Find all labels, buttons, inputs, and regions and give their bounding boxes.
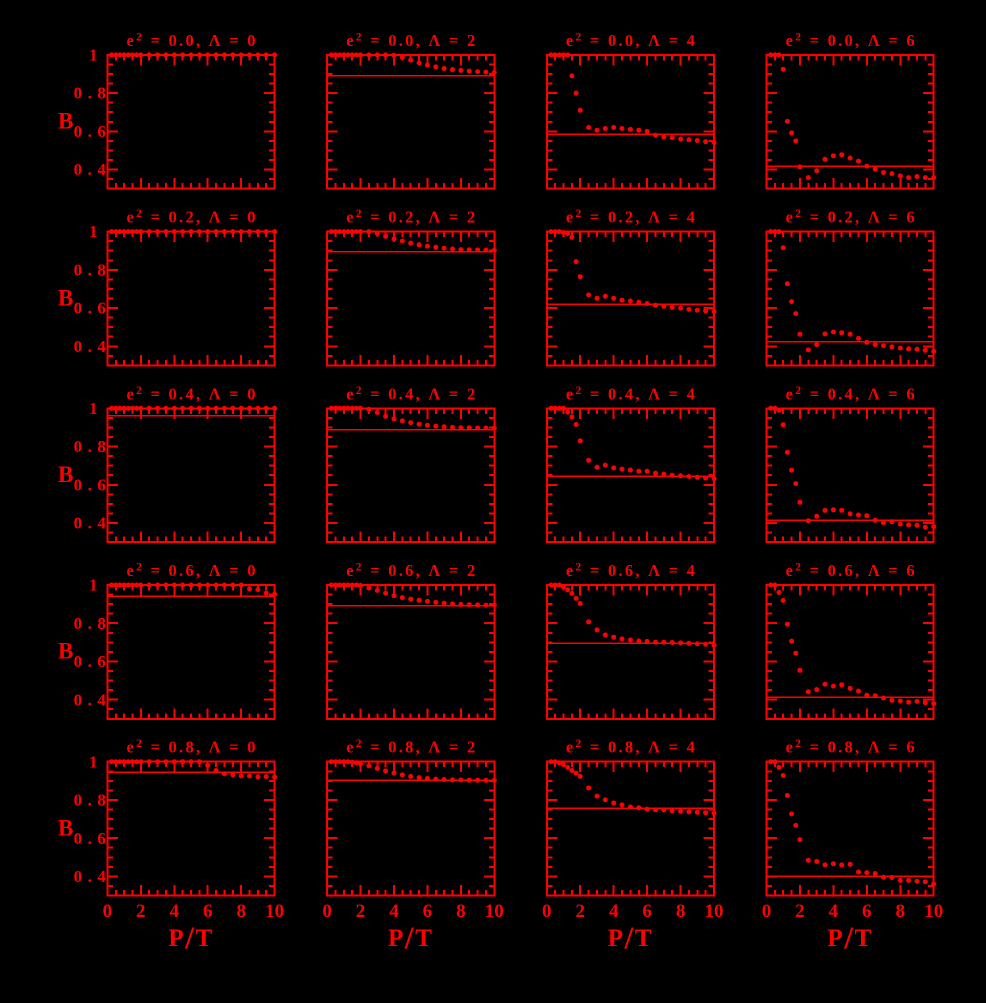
svg-text:e2 = 0.8, Λ = 6: e2 = 0.8, Λ = 6	[786, 738, 915, 757]
svg-text:e2 = 0.2, Λ = 6: e2 = 0.2, Λ = 6	[786, 208, 915, 227]
svg-text:1: 1	[89, 399, 98, 418]
svg-text:4: 4	[829, 901, 839, 922]
svg-text:e2 = 0.0, Λ = 4: e2 = 0.0, Λ = 4	[566, 31, 695, 50]
svg-text:0: 0	[542, 901, 552, 922]
svg-text:1: 1	[89, 576, 98, 595]
svg-text:e2 = 0.4, Λ = 0: e2 = 0.4, Λ = 0	[127, 384, 256, 403]
svg-text:e2 = 0.6, Λ = 6: e2 = 0.6, Λ = 6	[786, 561, 915, 580]
svg-text:B: B	[58, 639, 73, 664]
svg-text:4: 4	[389, 901, 399, 922]
svg-text:e2 = 0.4, Λ = 4: e2 = 0.4, Λ = 4	[566, 384, 695, 403]
svg-text:0.8: 0.8	[74, 614, 112, 633]
svg-text:e2 = 0.6, Λ = 2: e2 = 0.6, Λ = 2	[346, 561, 475, 580]
svg-text:1: 1	[89, 752, 98, 771]
svg-text:6: 6	[642, 901, 652, 922]
svg-text:e2 = 0.2, Λ = 0: e2 = 0.2, Λ = 0	[127, 208, 256, 227]
svg-text:10: 10	[485, 901, 504, 922]
svg-text:e2 = 0.0, Λ = 0: e2 = 0.0, Λ = 0	[127, 31, 256, 50]
svg-text:e2 = 0.0, Λ = 6: e2 = 0.0, Λ = 6	[786, 31, 915, 50]
svg-text:e2 = 0.8, Λ = 4: e2 = 0.8, Λ = 4	[566, 738, 695, 757]
svg-text:6: 6	[423, 901, 433, 922]
svg-text:8: 8	[676, 901, 686, 922]
svg-text:e2 = 0.8, Λ = 0: e2 = 0.8, Λ = 0	[127, 738, 256, 757]
svg-text:0.6: 0.6	[74, 829, 112, 848]
svg-text:0: 0	[762, 901, 772, 922]
svg-text:10: 10	[705, 901, 724, 922]
svg-text:P/T: P/T	[827, 920, 872, 956]
svg-text:e2 = 0.6, Λ = 0: e2 = 0.6, Λ = 0	[127, 561, 256, 580]
svg-text:0.6: 0.6	[74, 299, 112, 318]
svg-text:0.8: 0.8	[74, 791, 112, 810]
svg-text:2: 2	[575, 901, 585, 922]
svg-text:2: 2	[356, 901, 366, 922]
svg-text:0.8: 0.8	[74, 437, 112, 456]
svg-text:8: 8	[236, 901, 246, 922]
svg-text:0.4: 0.4	[74, 514, 112, 533]
svg-text:B: B	[58, 285, 73, 310]
svg-text:8: 8	[896, 901, 906, 922]
svg-text:e2 = 0.8, Λ = 2: e2 = 0.8, Λ = 2	[346, 738, 475, 757]
svg-text:0.6: 0.6	[74, 475, 112, 494]
svg-text:e2 = 0.2, Λ = 2: e2 = 0.2, Λ = 2	[346, 208, 475, 227]
svg-text:e2 = 0.2, Λ = 4: e2 = 0.2, Λ = 4	[566, 208, 695, 227]
svg-text:2: 2	[136, 901, 146, 922]
svg-text:0.6: 0.6	[74, 122, 112, 141]
svg-text:P/T: P/T	[388, 920, 433, 956]
svg-text:e2 = 0.4, Λ = 2: e2 = 0.4, Λ = 2	[346, 384, 475, 403]
svg-text:0.4: 0.4	[74, 160, 112, 179]
svg-text:10: 10	[924, 901, 943, 922]
svg-text:e2 = 0.4, Λ = 6: e2 = 0.4, Λ = 6	[786, 384, 915, 403]
svg-text:0.4: 0.4	[74, 867, 112, 886]
svg-text:P/T: P/T	[168, 920, 213, 956]
svg-text:0.4: 0.4	[74, 337, 112, 356]
svg-text:e2 = 0.6, Λ = 4: e2 = 0.6, Λ = 4	[566, 561, 695, 580]
svg-text:0.6: 0.6	[74, 652, 112, 671]
svg-text:6: 6	[203, 901, 213, 922]
svg-text:0.8: 0.8	[74, 260, 112, 279]
svg-text:B: B	[58, 462, 73, 487]
svg-text:1: 1	[89, 222, 98, 241]
svg-text:0.4: 0.4	[74, 690, 112, 709]
svg-text:B: B	[58, 815, 73, 840]
svg-text:0: 0	[103, 901, 113, 922]
svg-text:1: 1	[89, 46, 98, 65]
svg-text:4: 4	[609, 901, 619, 922]
svg-text:6: 6	[862, 901, 872, 922]
svg-text:e2 = 0.0, Λ = 2: e2 = 0.0, Λ = 2	[346, 31, 475, 50]
svg-text:10: 10	[265, 901, 284, 922]
svg-text:2: 2	[795, 901, 805, 922]
svg-text:4: 4	[170, 901, 180, 922]
svg-text:B: B	[58, 109, 73, 134]
svg-text:8: 8	[456, 901, 466, 922]
svg-text:P/T: P/T	[608, 920, 653, 956]
svg-text:0.8: 0.8	[74, 84, 112, 103]
svg-text:0: 0	[322, 901, 332, 922]
